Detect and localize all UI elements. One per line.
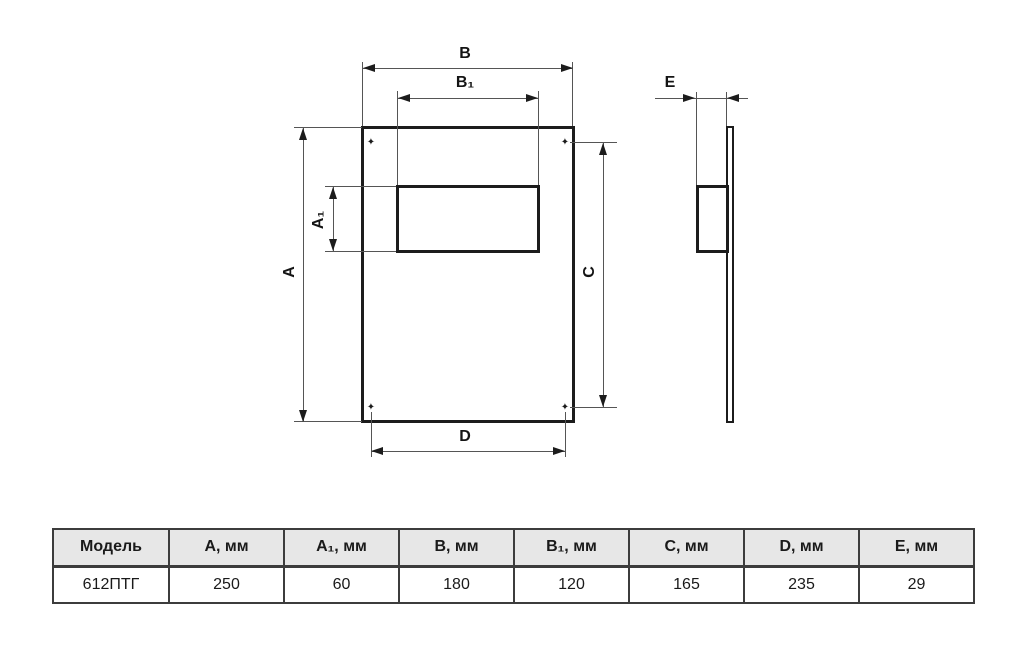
arrow-left-icon (363, 64, 375, 72)
dim-line-b (363, 68, 573, 69)
cell-b: 180 (399, 566, 514, 603)
arrow-right-icon (526, 94, 538, 102)
hole-marker-icon: ✦ (365, 137, 377, 149)
plate-outline (361, 126, 575, 423)
dim-label-a: A (281, 260, 301, 284)
dim-line-a (303, 128, 304, 422)
ext-line-c-bottom (570, 407, 617, 408)
spec-table-header-row: Модель А, мм А₁, мм В, мм В₁, мм С, мм D… (53, 529, 974, 566)
ext-line-b1-right (538, 91, 539, 186)
header-c: С, мм (629, 529, 744, 566)
side-plate-outline (726, 126, 734, 423)
arrow-right-icon (683, 94, 695, 102)
arrow-down-icon (329, 239, 337, 251)
arrow-right-icon (561, 64, 573, 72)
arrow-up-icon (329, 187, 337, 199)
hole-marker-icon: ✦ (365, 402, 377, 414)
cell-a: 250 (169, 566, 284, 603)
arrow-left-icon (371, 447, 383, 455)
cell-c: 165 (629, 566, 744, 603)
dim-line-d (371, 451, 565, 452)
dim-label-a1: A₁ (310, 206, 330, 234)
cell-d: 235 (744, 566, 859, 603)
ext-line-c-top (570, 142, 617, 143)
dim-label-d: D (440, 428, 490, 446)
header-d: D, мм (744, 529, 859, 566)
header-b1: В₁, мм (514, 529, 629, 566)
header-b: В, мм (399, 529, 514, 566)
cell-e: 29 (859, 566, 974, 603)
arrow-up-icon (599, 143, 607, 155)
dim-line-b1 (398, 98, 538, 99)
side-protrusion-rect (696, 185, 729, 253)
dim-label-c: C (581, 260, 601, 284)
spec-table-row: 612ПТГ 250 60 180 120 165 235 29 (53, 566, 974, 603)
dim-label-b1: B₁ (440, 74, 490, 92)
arrow-left-icon (398, 94, 410, 102)
header-model: Модель (53, 529, 169, 566)
dim-label-b: B (440, 45, 490, 63)
header-a: А, мм (169, 529, 284, 566)
ext-line-b1-left (397, 91, 398, 186)
ext-line-d-right (565, 412, 566, 457)
ext-line-a1-bottom (325, 251, 396, 252)
arrow-down-icon (299, 410, 307, 422)
technical-drawing-page: ✦ ✦ ✦ ✦ B B₁ A A₁ (0, 0, 1031, 670)
header-a1: А₁, мм (284, 529, 399, 566)
arrow-up-icon (299, 128, 307, 140)
hole-marker-icon: ✦ (559, 137, 571, 149)
cell-b1: 120 (514, 566, 629, 603)
arrow-down-icon (599, 395, 607, 407)
dim-line-c (603, 143, 604, 407)
dim-label-e: E (657, 74, 683, 92)
arrow-right-icon (553, 447, 565, 455)
hole-marker-icon: ✦ (559, 402, 571, 414)
header-e: Е, мм (859, 529, 974, 566)
spec-table: Модель А, мм А₁, мм В, мм В₁, мм С, мм D… (52, 528, 975, 604)
cell-a1: 60 (284, 566, 399, 603)
ext-line-e-left (696, 92, 697, 186)
cell-model: 612ПТГ (53, 566, 169, 603)
cutout-rect (396, 185, 540, 253)
arrow-left-icon (727, 94, 739, 102)
